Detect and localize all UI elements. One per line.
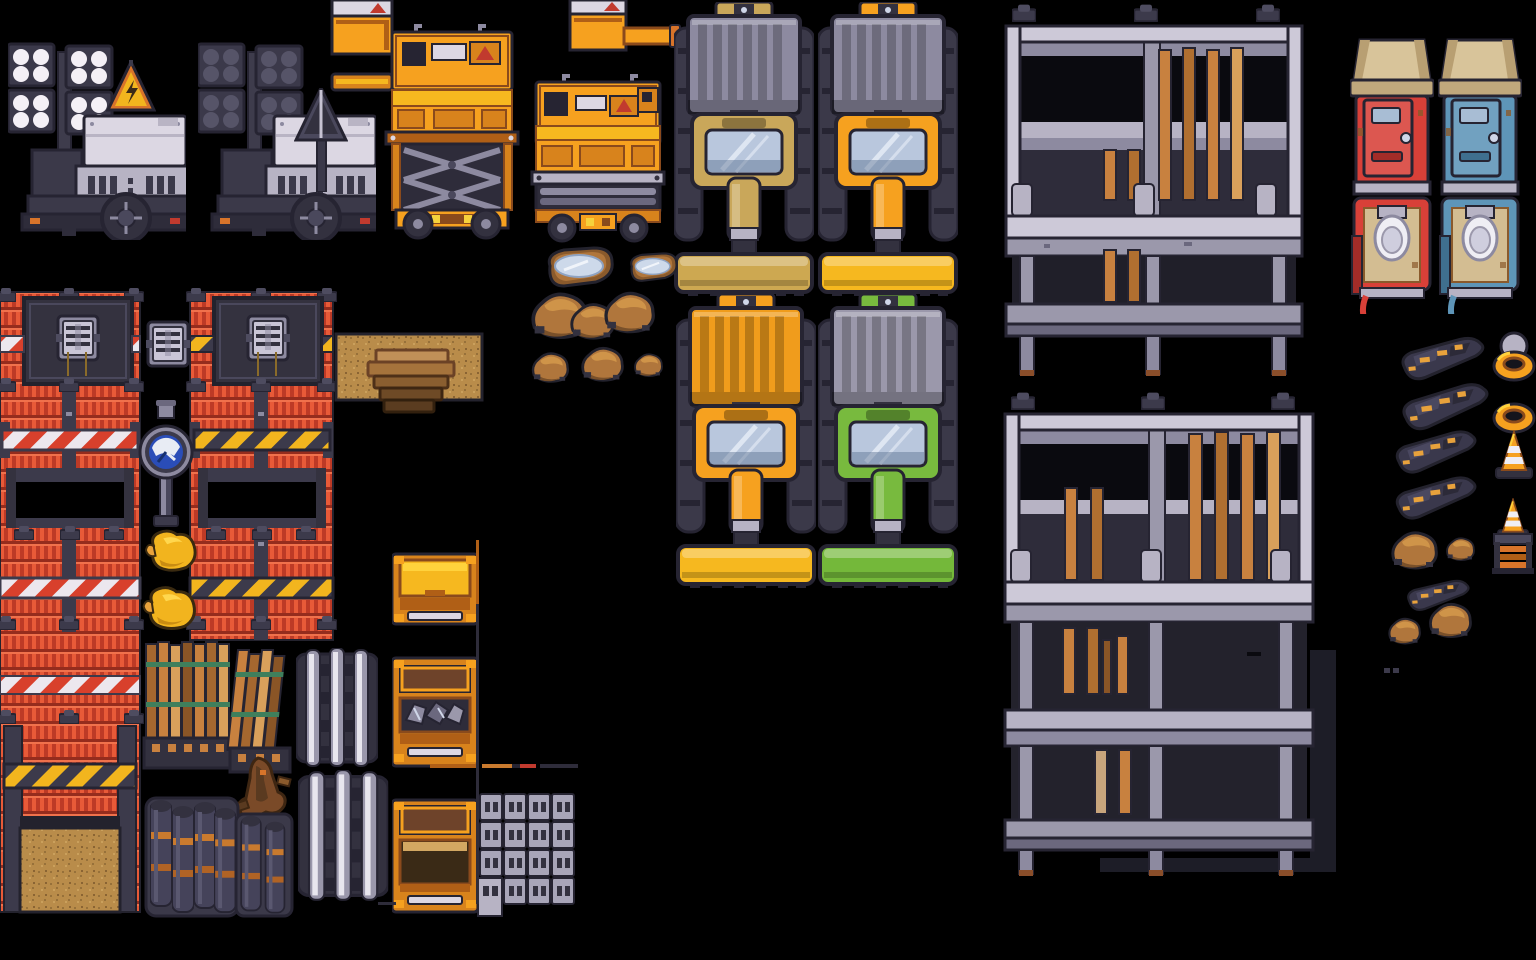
boulder-cluster: [533, 293, 653, 338]
tileset-scene: [0, 0, 1536, 960]
ring-light: [1494, 404, 1534, 432]
small-rock: [635, 354, 662, 376]
label-plate: [432, 44, 466, 60]
rubble-streak: [1395, 476, 1478, 520]
traffic-cone-stand: [1492, 500, 1534, 574]
porta-potty-front-blue: [1438, 40, 1522, 194]
cinder-block-pallet: [478, 794, 574, 916]
beam-fragment-v: [476, 540, 479, 904]
gauge-post: [140, 400, 192, 526]
beam-fragments-h: [430, 764, 578, 768]
floodlight-trailer-lit: [8, 44, 192, 242]
ring-light-domed: [1494, 333, 1534, 380]
dumpster-scrap: [392, 658, 478, 766]
control-box: [544, 92, 568, 116]
vent-unit-tile: [146, 322, 190, 366]
traffic-cone: [1496, 432, 1532, 478]
porta-potty-top-blue: [1440, 198, 1518, 328]
plow-truck-green: [818, 294, 958, 588]
striped-barrier: [0, 578, 140, 598]
mud-puddle: [549, 248, 612, 286]
hazard-barrier: [194, 430, 330, 450]
strap: [146, 662, 230, 667]
rubble-streak: [1401, 337, 1485, 380]
plow-truck-orange: [676, 294, 816, 588]
folded-scissor: [536, 184, 660, 210]
barrel-cluster: [146, 798, 238, 916]
red-wall-right-column: [186, 288, 337, 640]
lumber-bundle-leaning: [227, 650, 290, 772]
plow-truck-khaki: [674, 2, 814, 296]
label-plate: [576, 96, 606, 110]
supply-box: [570, 0, 626, 50]
debris-specks: [1384, 668, 1399, 673]
rubble-streak: [1401, 383, 1490, 431]
dumpster-lid: [392, 800, 478, 912]
steel-beam-stack: [298, 770, 388, 900]
supply-box: [332, 0, 392, 54]
dirt-mound: [1389, 619, 1419, 644]
dirt-doorway: [20, 828, 120, 912]
crane-arm: [624, 25, 680, 47]
porta-potty-top-red: [1352, 198, 1430, 328]
rubber-duck: [146, 531, 195, 570]
window-opening: [6, 468, 134, 528]
red-wall-left-column: [0, 288, 144, 912]
lumber-bundle: [144, 642, 232, 768]
beam-piece: [332, 74, 392, 90]
hazard-header: [4, 764, 136, 788]
pallet-foot: [478, 878, 502, 916]
hazard-band: [190, 336, 214, 352]
stripe-band: [0, 676, 140, 694]
scaffold-three-level: [1005, 393, 1336, 876]
mud-puddle: [631, 253, 676, 280]
plow-truck-orange-graybed: [818, 2, 958, 296]
beam-fragment-joint: [378, 902, 396, 905]
scaffold-two-level: [1006, 5, 1302, 376]
scissor-lift-collapsed: [532, 76, 664, 241]
window-opening: [198, 468, 326, 528]
dirt-mound: [1393, 533, 1436, 568]
stripe-band: [0, 336, 24, 352]
dumpster-open: [392, 554, 478, 624]
rubber-duck: [143, 587, 196, 630]
hazard-barrier: [190, 578, 333, 598]
wood-steps: [368, 350, 454, 412]
striped-barrier: [2, 430, 138, 450]
porta-potty-front-red: [1350, 40, 1434, 194]
control-box: [402, 42, 426, 66]
barrel-cluster-small: [236, 814, 292, 916]
steel-beam-stack: [296, 648, 378, 766]
small-rock: [533, 353, 568, 381]
small-rock: [583, 348, 623, 380]
rubble-streak: [1395, 430, 1478, 474]
dirt-mound: [1447, 538, 1474, 560]
planks: [146, 642, 229, 740]
scissor-lift-extended: [386, 26, 518, 238]
tileset-canvas: [0, 0, 1536, 960]
strap: [146, 702, 230, 707]
dirt-mound: [1430, 604, 1470, 636]
